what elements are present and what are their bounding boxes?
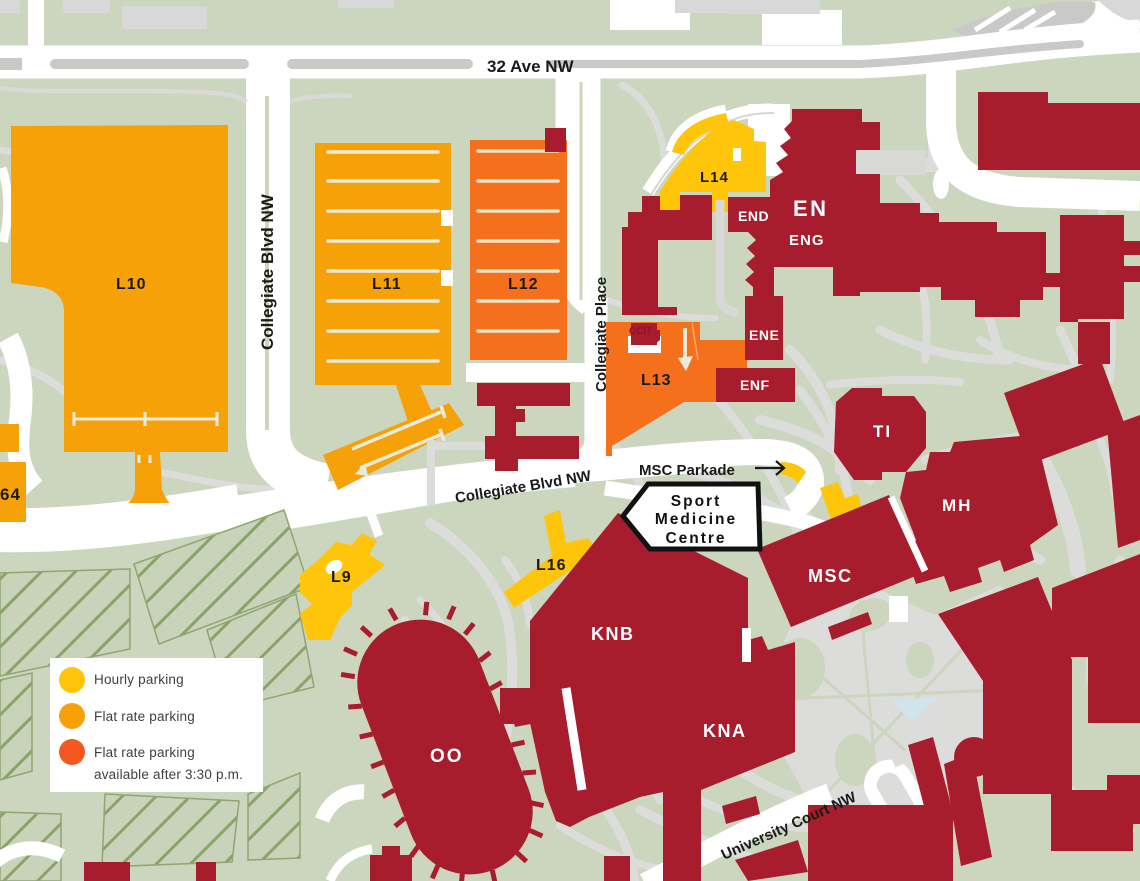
svg-text:ENE: ENE	[749, 327, 779, 343]
svg-text:END: END	[738, 208, 769, 224]
svg-text:MH: MH	[942, 496, 972, 515]
svg-text:Hourly parking: Hourly parking	[94, 672, 184, 687]
svg-text:KNA: KNA	[703, 721, 747, 741]
svg-text:Centre: Centre	[665, 530, 726, 547]
svg-text:Flat rate parking: Flat rate parking	[94, 745, 195, 760]
svg-text:Sport: Sport	[671, 493, 721, 510]
svg-text:L13: L13	[641, 372, 672, 389]
svg-text:Collegiate Place: Collegiate Place	[593, 277, 610, 392]
svg-text:Flat rate parking: Flat rate parking	[94, 709, 195, 724]
svg-text:ENG: ENG	[789, 232, 825, 249]
svg-text:64: 64	[0, 485, 21, 504]
svg-text:available after 3:30 p.m.: available after 3:30 p.m.	[94, 767, 243, 782]
svg-text:CCIT: CCIT	[629, 326, 652, 337]
svg-text:L10: L10	[116, 276, 147, 293]
svg-text:MSC: MSC	[808, 566, 853, 586]
svg-text:Collegiate Blvd NW: Collegiate Blvd NW	[258, 193, 277, 350]
svg-text:MSC Parkade: MSC Parkade	[639, 462, 735, 479]
svg-text:Medicine: Medicine	[655, 511, 737, 528]
svg-text:OO: OO	[430, 746, 464, 767]
svg-text:L14: L14	[700, 169, 729, 186]
svg-text:EN: EN	[793, 196, 829, 221]
svg-text:KNB: KNB	[591, 624, 635, 644]
svg-text:ENF: ENF	[740, 377, 770, 393]
svg-text:L11: L11	[372, 276, 402, 293]
svg-text:L9: L9	[331, 569, 352, 586]
svg-text:TI: TI	[873, 422, 892, 441]
svg-text:32 Ave NW: 32 Ave NW	[487, 57, 575, 76]
svg-text:L12: L12	[508, 276, 539, 293]
svg-text:L16: L16	[536, 557, 567, 574]
